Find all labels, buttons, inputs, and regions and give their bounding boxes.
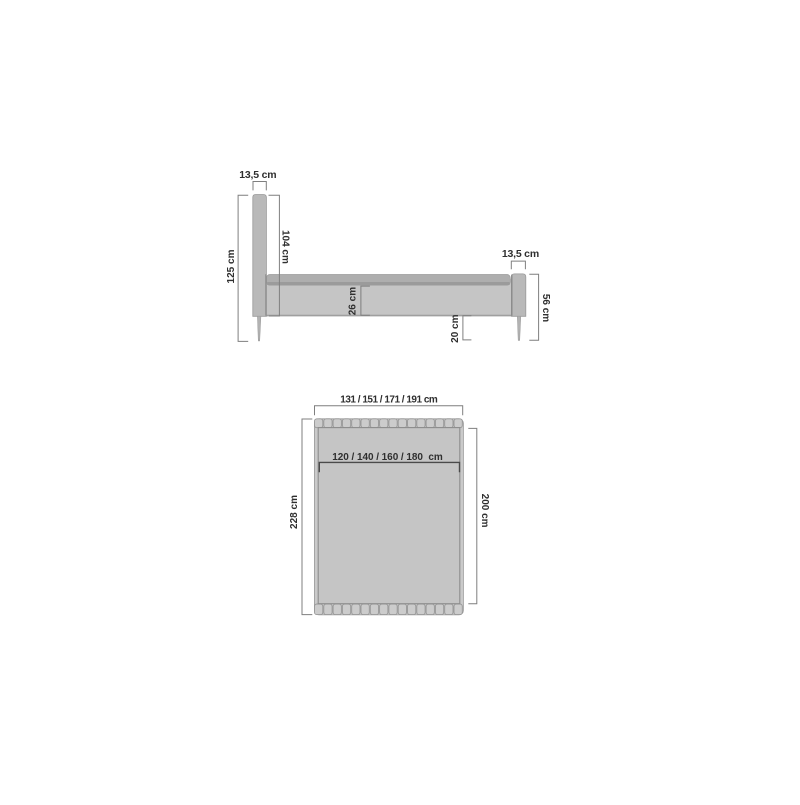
svg-text:13,5 cm: 13,5 cm (502, 248, 539, 260)
svg-text:125 cm: 125 cm (226, 249, 237, 283)
svg-text:13,5 cm: 13,5 cm (239, 169, 276, 181)
svg-text:120 / 140 / 160 / 180 cm: 120 / 140 / 160 / 180 cm (332, 452, 443, 463)
svg-text:104 cm: 104 cm (279, 230, 290, 264)
svg-text:228 cm: 228 cm (289, 495, 300, 529)
svg-text:26 cm: 26 cm (348, 287, 359, 315)
svg-text:200 cm: 200 cm (479, 494, 490, 528)
svg-text:20 cm: 20 cm (450, 314, 461, 342)
svg-text:56 cm: 56 cm (540, 294, 551, 322)
svg-text:131 / 151 / 171 / 191 cm: 131 / 151 / 171 / 191 cm (340, 395, 438, 406)
